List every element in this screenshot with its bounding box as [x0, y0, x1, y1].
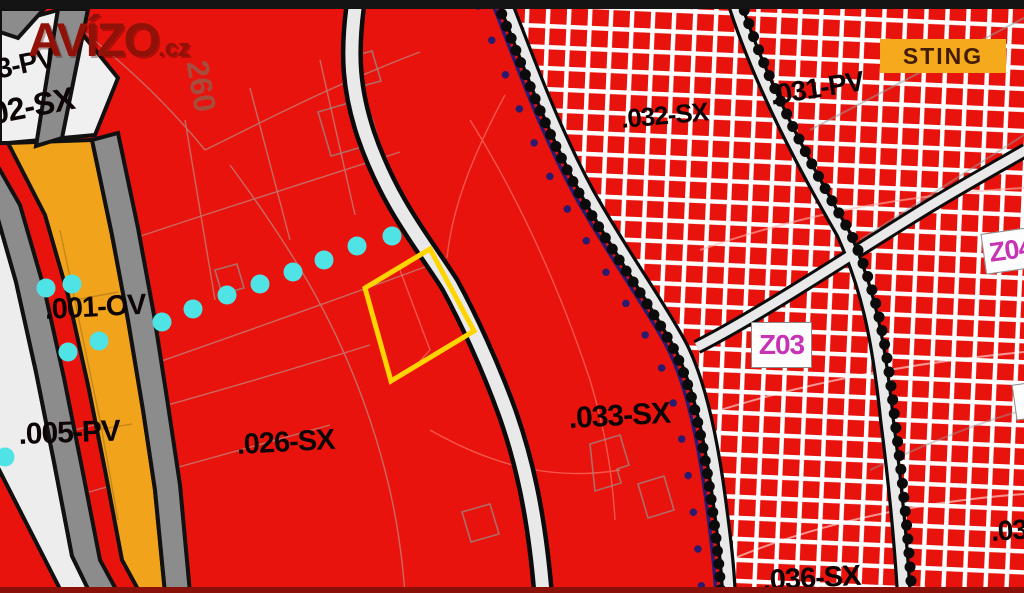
avizo-logo-brand: AVÍZO: [28, 13, 158, 66]
zone-label-033-sx: .033-SX: [568, 399, 671, 434]
bottom-dark-red-bar: [0, 587, 1024, 593]
zone-label-001-ov: .001-OV: [44, 291, 146, 325]
area-badge-z03: Z03: [751, 322, 812, 368]
zone-label-026-sx: .026-SX: [236, 426, 335, 460]
zone-label-005-pv: .005-PV: [18, 416, 120, 450]
zone-label-032-sx: .032-SX: [620, 98, 709, 131]
zone-label-03-partial: .03: [990, 515, 1024, 545]
zoning-map-viewport[interactable]: 3-PV 02-SX .001-OV .005-PV .026-SX .033-…: [0, 0, 1024, 593]
area-badge-z04-text: Z04: [987, 232, 1024, 269]
sting-watermark-text: STING: [903, 43, 983, 70]
avizo-logo-tld: .cz: [158, 35, 190, 62]
sting-watermark-badge: STING: [880, 39, 1006, 73]
zoning-map-canvas[interactable]: [0, 0, 1024, 593]
top-black-bar: [0, 0, 1024, 9]
area-badge-z03-text: Z03: [759, 329, 804, 361]
avizo-logo: AVÍZO.cz: [28, 12, 190, 67]
